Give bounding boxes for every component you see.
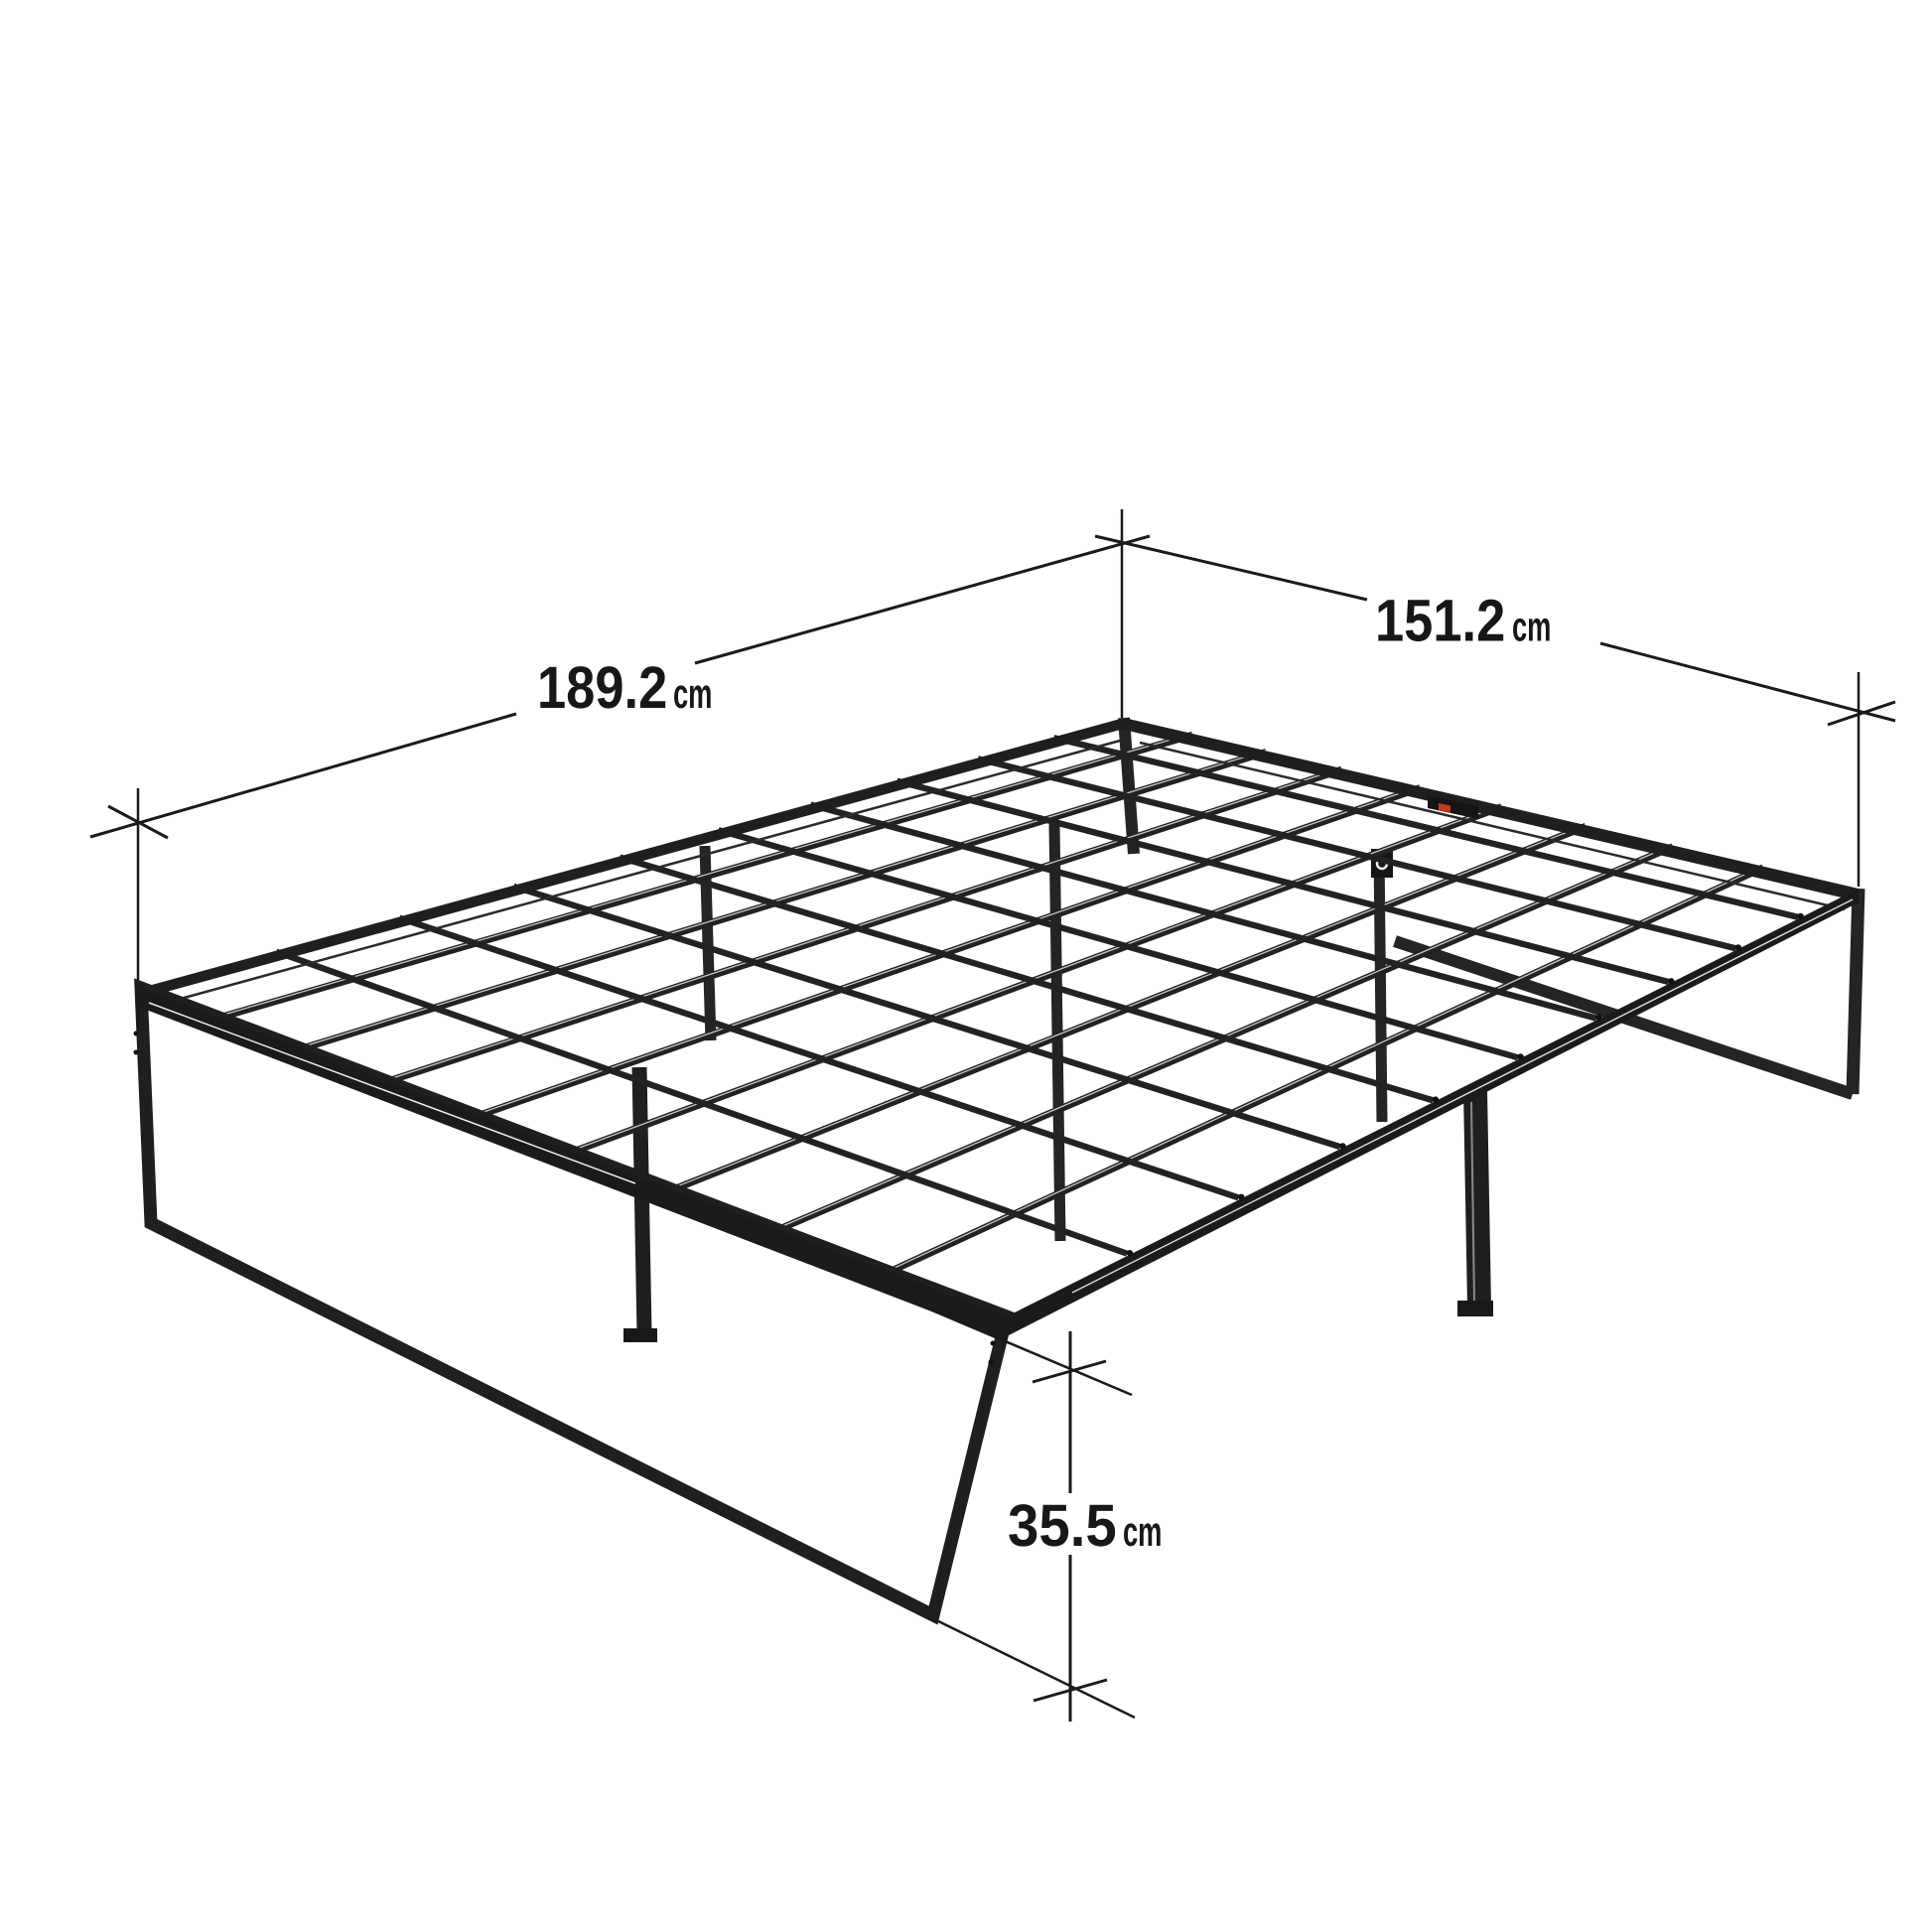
svg-text:151.2: 151.2	[1375, 588, 1505, 654]
svg-text:cm: cm	[1512, 604, 1551, 650]
svg-text:189.2: 189.2	[537, 654, 667, 721]
svg-text:cm: cm	[1123, 1508, 1162, 1555]
svg-text:35.5: 35.5	[1008, 1492, 1117, 1559]
svg-text:cm: cm	[673, 670, 712, 717]
